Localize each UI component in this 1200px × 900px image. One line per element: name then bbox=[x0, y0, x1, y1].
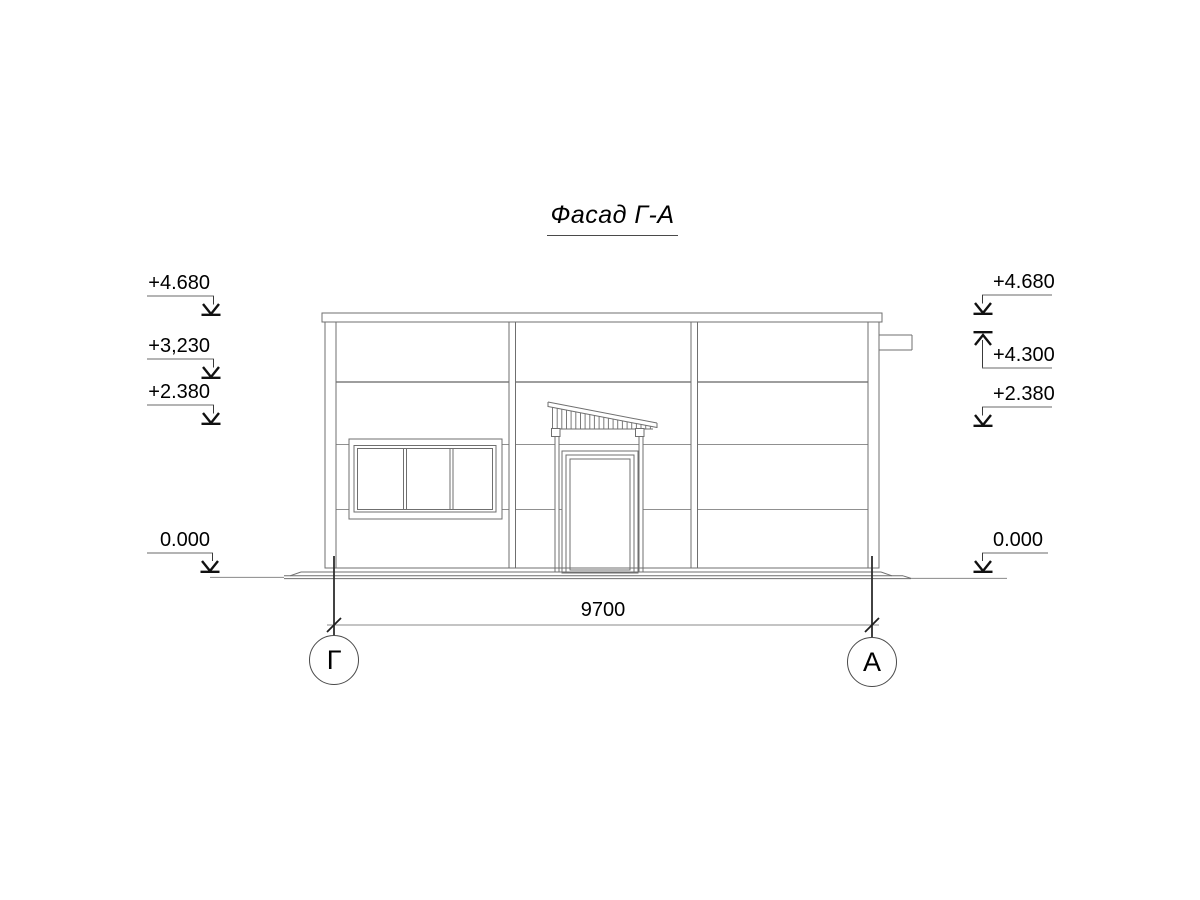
elevation-arrow-down-icon bbox=[203, 413, 219, 423]
elevation-label-right-1: +4.300 bbox=[993, 344, 1055, 366]
elevation-marker-left-3 bbox=[147, 553, 220, 572]
elevation-arrow-down-icon bbox=[203, 304, 219, 314]
elevation-label-left-2: +2.380 bbox=[60, 381, 210, 403]
elevation-label-right-0: +4.680 bbox=[993, 271, 1055, 293]
elevation-arrow-down-icon bbox=[975, 561, 991, 571]
scupper-pipe bbox=[880, 335, 913, 350]
drawing-sheet: Фасад Г-А +4.680 +3,230 +2.380 0.000 +4.… bbox=[0, 0, 1200, 900]
axis-bubble-g: Г bbox=[309, 635, 359, 685]
elevation-marker-left-0 bbox=[147, 296, 221, 315]
elevation-arrow-down-icon bbox=[203, 367, 219, 377]
elevation-marker-right-3 bbox=[974, 553, 1049, 572]
elevation-arrow-down-icon bbox=[202, 561, 218, 571]
elevation-marker-left-1 bbox=[147, 359, 221, 378]
elevation-marker-left-2 bbox=[147, 405, 221, 424]
elevation-label-left-3: 0.000 bbox=[60, 529, 210, 551]
axis-bubble-a: А bbox=[847, 637, 897, 687]
elevation-marker-right-2 bbox=[974, 407, 1053, 426]
elevation-marker-right-0 bbox=[974, 295, 1053, 314]
elevation-label-left-0: +4.680 bbox=[60, 272, 210, 294]
dimension-value: 9700 bbox=[553, 599, 653, 622]
elevation-label-left-1: +3,230 bbox=[60, 335, 210, 357]
elevation-arrow-down-icon bbox=[975, 303, 991, 313]
window bbox=[349, 439, 502, 519]
facade-drawing bbox=[0, 0, 1200, 900]
elevation-label-right-3: 0.000 bbox=[993, 529, 1043, 551]
elevation-arrow-down-icon bbox=[975, 415, 991, 425]
drawing-title: Фасад Г-А bbox=[547, 201, 678, 236]
entrance-door bbox=[562, 451, 638, 573]
elevation-label-right-2: +2.380 bbox=[993, 383, 1055, 405]
